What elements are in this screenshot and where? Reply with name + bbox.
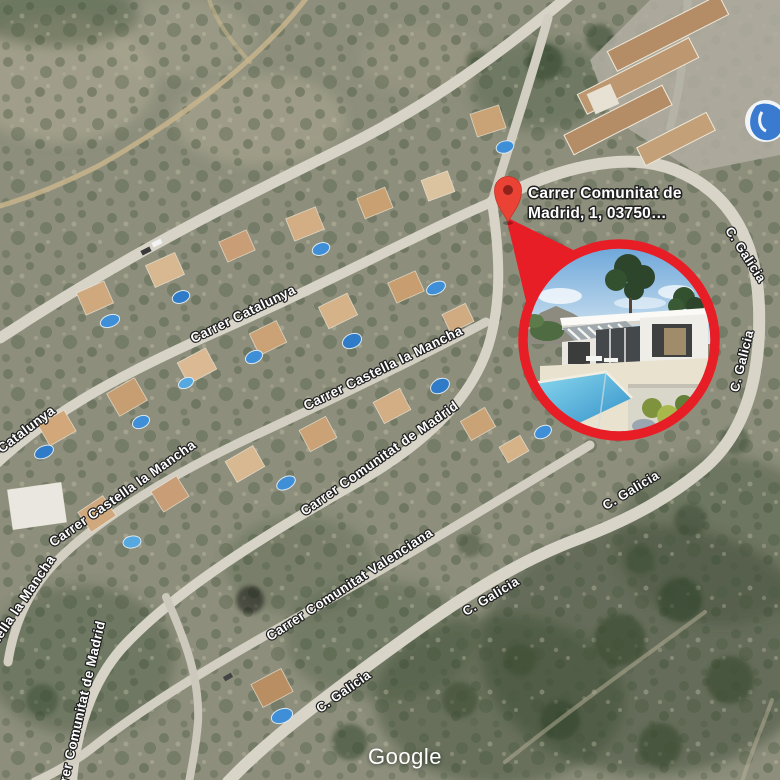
callout-line-1: Carrer Comunitat de xyxy=(528,185,682,202)
google-logo[interactable]: Google xyxy=(368,744,442,769)
satellite-map[interactable]: Carrer Catalunya Carrer Catalunya Carrer… xyxy=(0,0,780,780)
callout-line-2: Madrid, 1, 03750… xyxy=(528,205,667,222)
pin-inner-dot xyxy=(503,185,513,195)
map-building xyxy=(7,482,66,529)
